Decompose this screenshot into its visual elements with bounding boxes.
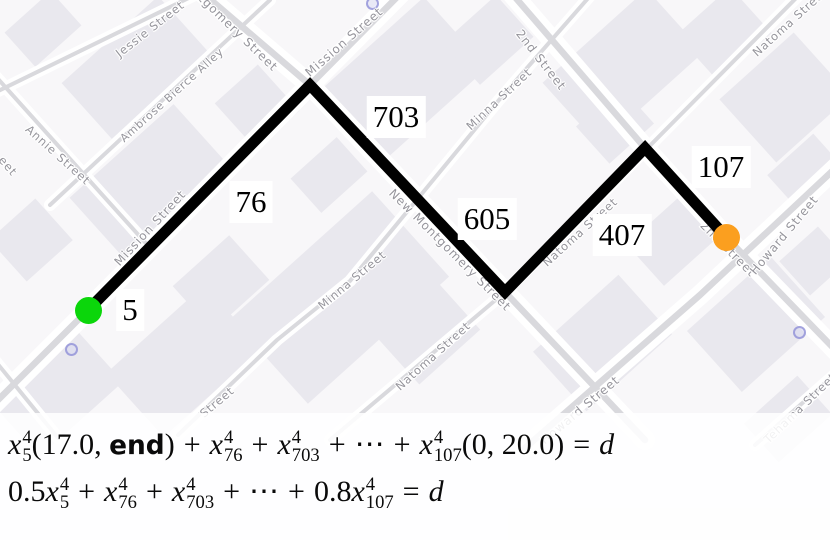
math-variable: x4703 — [172, 475, 214, 508]
math-variable: d — [429, 475, 444, 508]
math-supsub: 4703 — [186, 476, 214, 513]
math-var-base: x — [46, 475, 59, 508]
math-operator: + — [288, 475, 305, 508]
math-operator: + — [329, 428, 346, 461]
math-supsub: 45 — [22, 429, 31, 466]
math-var-base: x — [104, 475, 117, 508]
math-subscript: 703 — [292, 447, 320, 466]
equation-line: x45(17.0, end)+x476+x4703+⋯+x4107(0, 20.… — [8, 421, 614, 468]
math-variable: x4107 — [351, 475, 393, 508]
math-subscript: 107 — [434, 447, 462, 466]
math-supsub: 4107 — [434, 429, 462, 466]
math-subscript: 76 — [118, 494, 137, 513]
route-start-marker — [75, 297, 102, 324]
route-edge-label: 703 — [367, 96, 426, 138]
math-variable: x476 — [104, 475, 137, 508]
math-variable: d — [599, 428, 614, 461]
math-operator: + — [146, 475, 163, 508]
math-supsub: 4703 — [292, 429, 320, 466]
math-variable: x476 — [210, 428, 243, 461]
math-supsub: 4107 — [366, 476, 394, 513]
math-subscript: 703 — [186, 494, 214, 513]
math-supsub: 45 — [60, 476, 69, 513]
map-route-figure: Jessie StreetMontgomery StreetAmbrose Bi… — [0, 0, 830, 540]
route-edge-label: 107 — [692, 146, 751, 188]
route-edge-label: 605 — [458, 198, 517, 240]
math-variable: x45 — [46, 475, 70, 508]
equation-panel: x45(17.0, end)+x476+x4703+⋯+x4107(0, 20.… — [8, 421, 614, 515]
math-variable: x4107 — [420, 428, 462, 461]
math-operator: + — [184, 428, 201, 461]
route-end-marker — [713, 224, 740, 251]
math-subscript: 107 — [366, 494, 394, 513]
math-variable: x4703 — [277, 428, 319, 461]
math-text: (17.0, — [32, 428, 110, 461]
math-text: (0, 20.0) — [462, 428, 564, 461]
route-edge-label: 76 — [230, 181, 273, 223]
math-operator: + — [252, 428, 269, 461]
math-text: ⋯ — [249, 475, 279, 508]
math-var-base: x — [420, 428, 433, 461]
math-var-base: x — [8, 428, 21, 461]
math-supsub: 476 — [224, 429, 243, 466]
route-edge-label: 5 — [116, 289, 144, 331]
math-variable: x45 — [8, 428, 32, 461]
math-operator: + — [223, 475, 240, 508]
math-operator: = — [573, 428, 590, 461]
math-text: 0.5 — [8, 475, 46, 508]
math-operator: + — [78, 475, 95, 508]
math-text: ⋯ — [355, 428, 385, 461]
route-edge-label: 407 — [593, 214, 652, 256]
math-text: ) — [165, 428, 175, 461]
math-var-base: x — [277, 428, 290, 461]
math-supsub: 476 — [118, 476, 137, 513]
math-operator: = — [403, 475, 420, 508]
math-text: 0.8 — [314, 475, 352, 508]
math-subscript: 5 — [22, 447, 31, 466]
math-subscript: 5 — [60, 494, 69, 513]
equation-line: 0.5x45+x476+x4703+⋯+0.8x4107=d — [8, 468, 614, 515]
math-operator: + — [394, 428, 411, 461]
math-var-base: x — [210, 428, 223, 461]
math-keyword: end — [109, 430, 165, 461]
math-subscript: 76 — [224, 447, 243, 466]
math-var-base: x — [172, 475, 185, 508]
math-var-base: x — [351, 475, 364, 508]
